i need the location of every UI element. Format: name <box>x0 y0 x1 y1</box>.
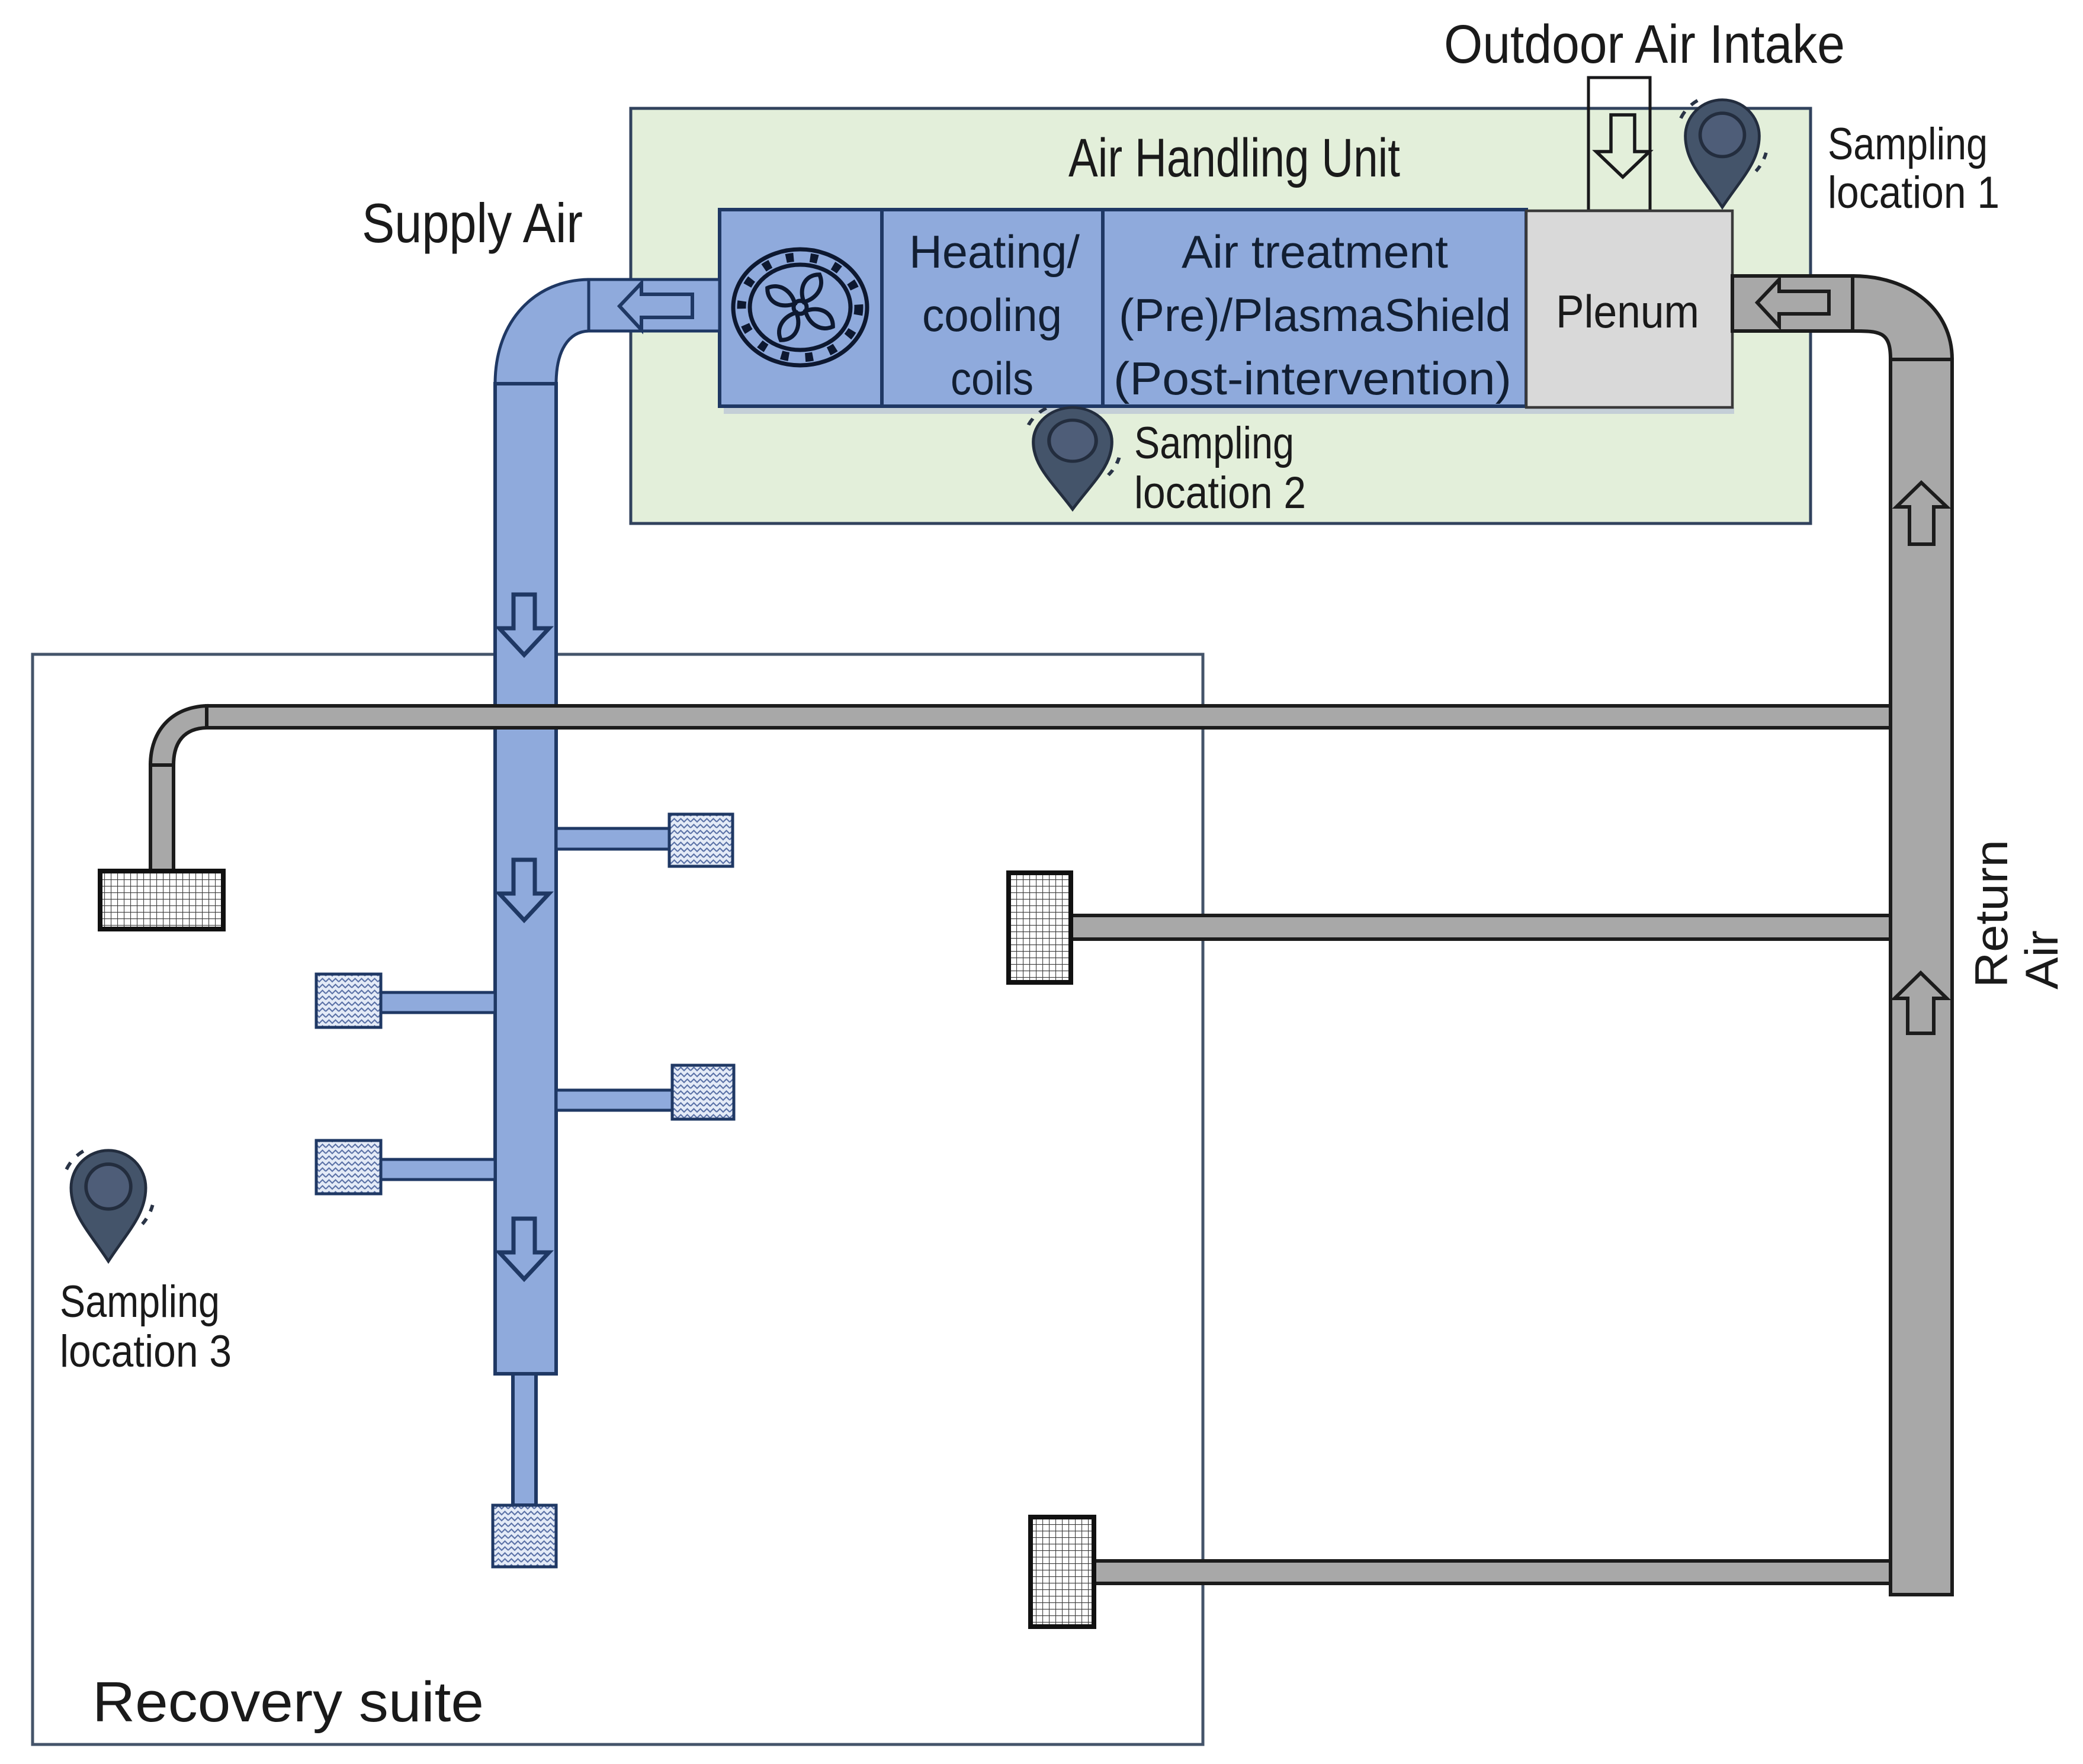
svg-text:location 2: location 2 <box>1134 468 1306 518</box>
svg-text:Plenum: Plenum <box>1556 285 1699 338</box>
svg-text:Air: Air <box>2015 930 2068 989</box>
svg-text:Recovery suite: Recovery suite <box>92 1670 484 1734</box>
svg-text:Sampling: Sampling <box>1828 119 1988 169</box>
svg-text:Outdoor Air Intake: Outdoor Air Intake <box>1444 14 1845 75</box>
svg-text:Sampling: Sampling <box>1134 418 1294 468</box>
svg-text:Sampling: Sampling <box>60 1277 220 1327</box>
svg-text:Air Handling Unit: Air Handling Unit <box>1068 128 1400 188</box>
svg-text:coils: coils <box>951 352 1034 404</box>
svg-text:Supply Air: Supply Air <box>362 192 583 254</box>
svg-text:cooling: cooling <box>922 289 1062 341</box>
svg-text:(Pre)/PlasmaShield: (Pre)/PlasmaShield <box>1119 289 1511 341</box>
svg-text:Heating/: Heating/ <box>909 226 1080 278</box>
svg-text:Air treatment: Air treatment <box>1182 226 1448 278</box>
svg-text:location 3: location 3 <box>60 1326 232 1377</box>
svg-text:Return: Return <box>1965 840 2017 988</box>
svg-text:location 1: location 1 <box>1828 168 1999 218</box>
svg-text:(Post-intervention): (Post-intervention) <box>1113 352 1511 404</box>
